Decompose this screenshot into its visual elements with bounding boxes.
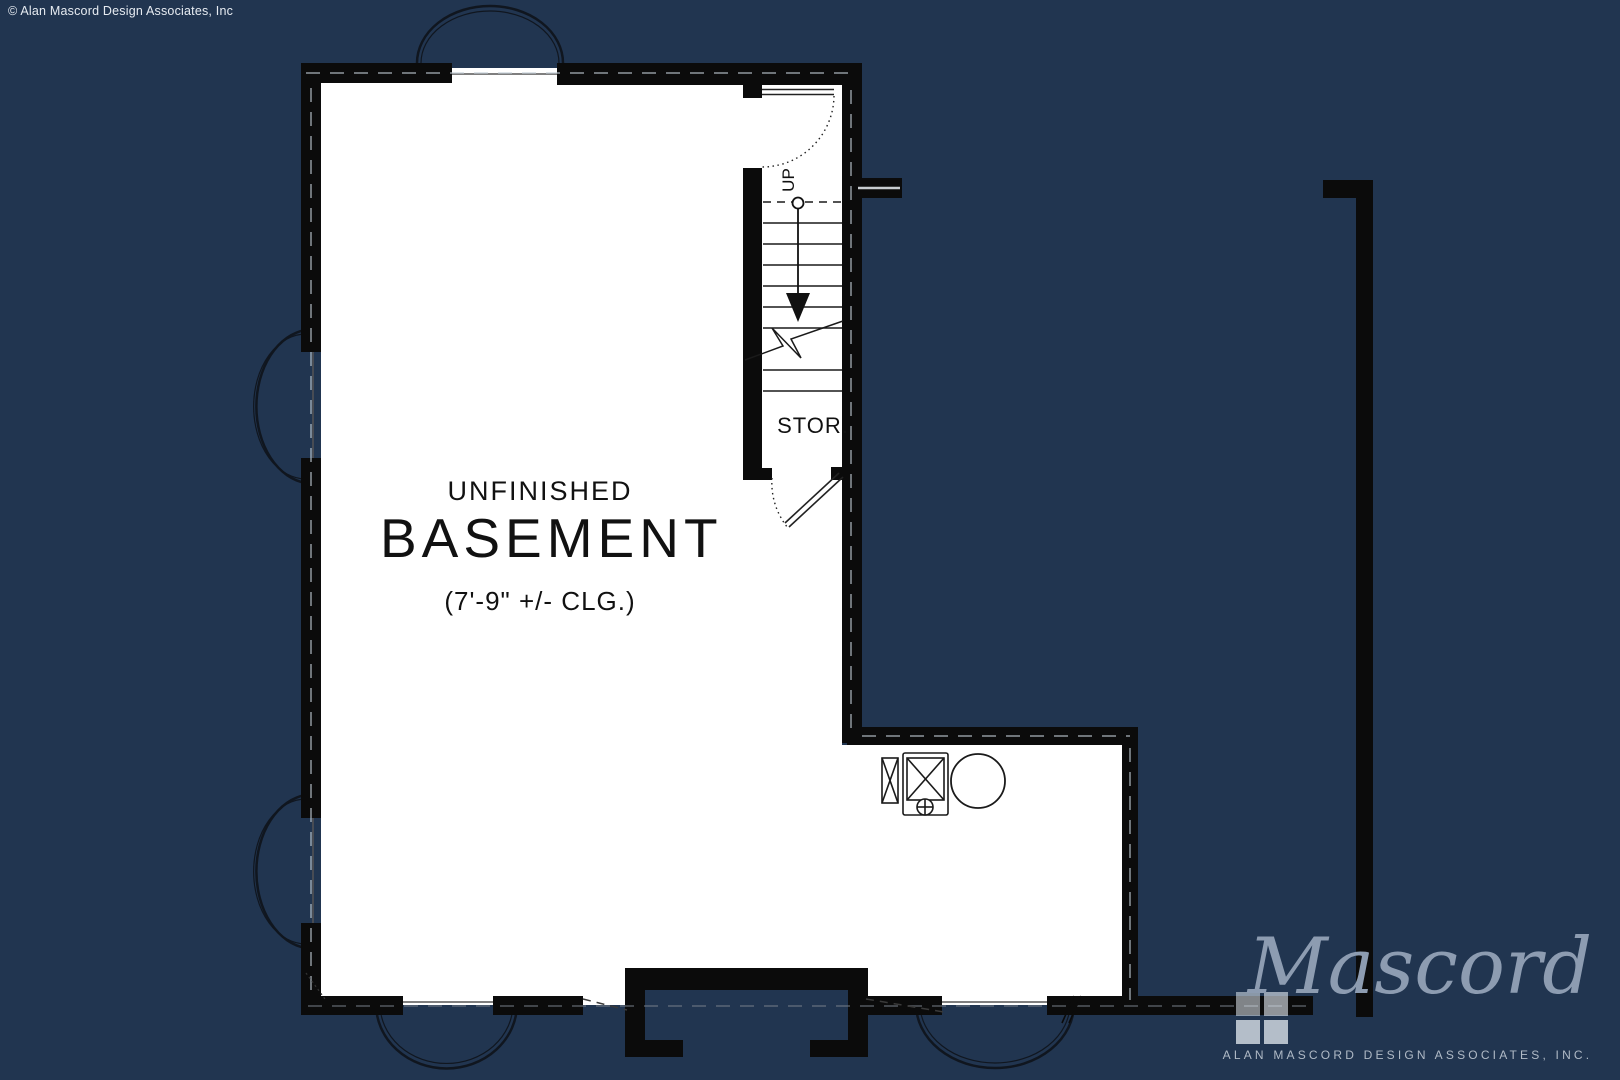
- floor-plan-drawing: [0, 0, 1620, 1080]
- logo-subtitle-text: ALAN MASCORD DESIGN ASSOCIATES, INC.: [1210, 1048, 1605, 1062]
- ceiling-height-note: (7'-9" +/- CLG.): [380, 586, 700, 617]
- copyright-notice: © Alan Mascord Design Associates, Inc: [8, 4, 233, 18]
- garage-foundation-walls: [1323, 180, 1373, 1017]
- duct-symbol: [882, 758, 898, 803]
- water-heater-symbol: [951, 754, 1005, 808]
- storage-room-label: STOR.: [758, 413, 868, 439]
- furnace-symbol: [903, 753, 948, 815]
- mascord-logo: Mascord ALAN MASCORD DESIGN ASSOCIATES, …: [1180, 950, 1620, 1080]
- logo-script-text: Mascord: [1220, 922, 1620, 1012]
- room-title-line2: BASEMENT: [380, 506, 720, 570]
- stoop-walls: [625, 968, 868, 1057]
- room-title-line1: UNFINISHED: [380, 476, 700, 507]
- stairs-up-label: UP: [772, 163, 806, 197]
